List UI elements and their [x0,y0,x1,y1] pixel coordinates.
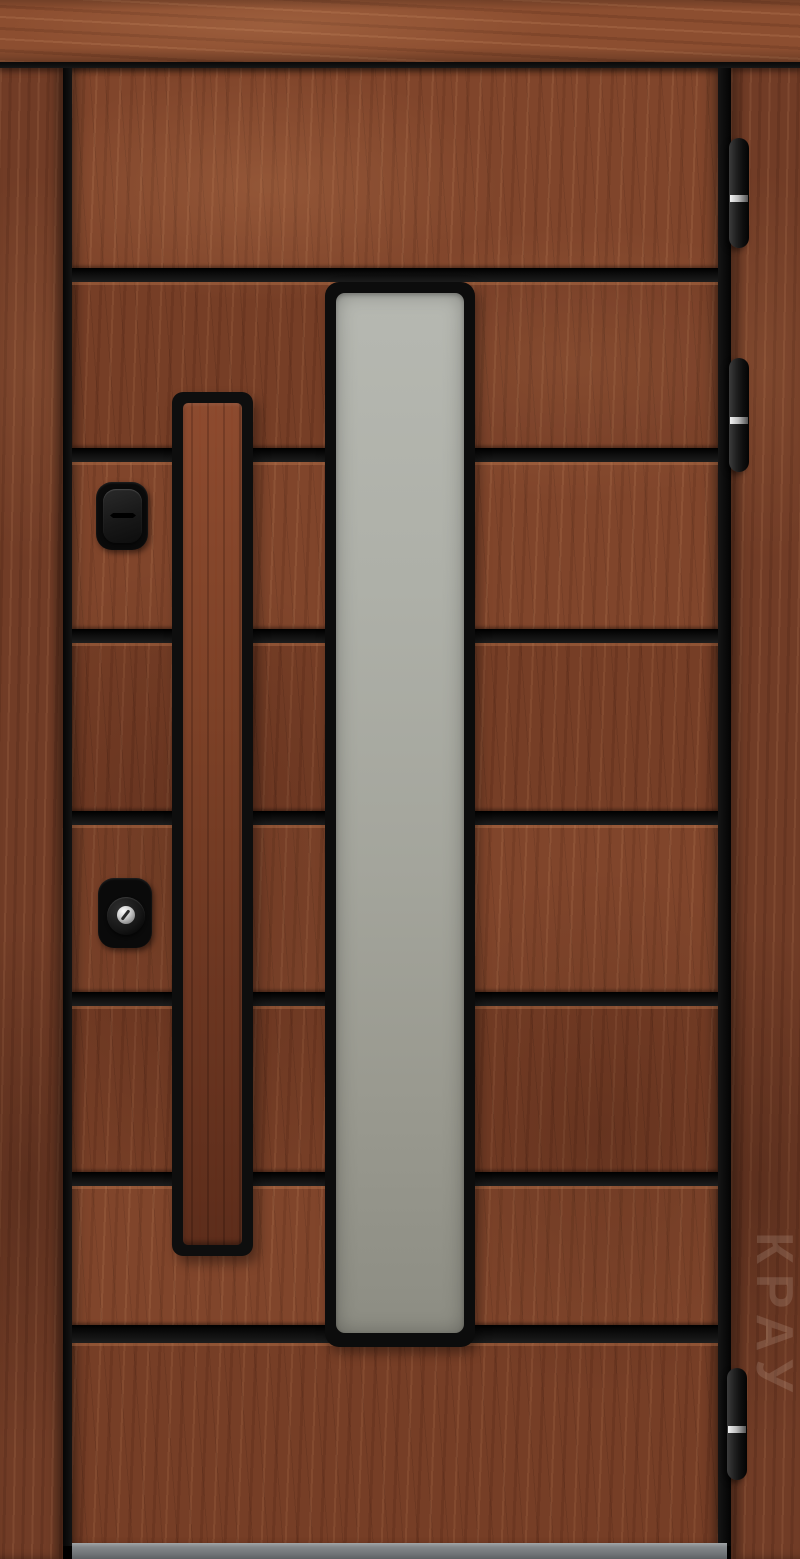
horizontal-groove [72,268,718,282]
hinge [729,358,749,472]
frame-header-seam [0,62,800,68]
leaf-frame-gap-left [63,68,72,1546]
door-frame-left [0,68,63,1559]
pull-handle-wood[interactable] [183,403,242,1245]
threshold-sill [72,1543,727,1559]
hinge [727,1368,747,1480]
door-frame-header [0,0,800,62]
hinge-band [728,1426,746,1433]
hinge-band [730,417,748,424]
door-photo: КРАУ [0,0,800,1559]
thumbturn-slot-icon [110,513,136,518]
frosted-glass-pane [336,293,464,1333]
hinge [729,138,749,248]
hinge-band [730,195,748,202]
